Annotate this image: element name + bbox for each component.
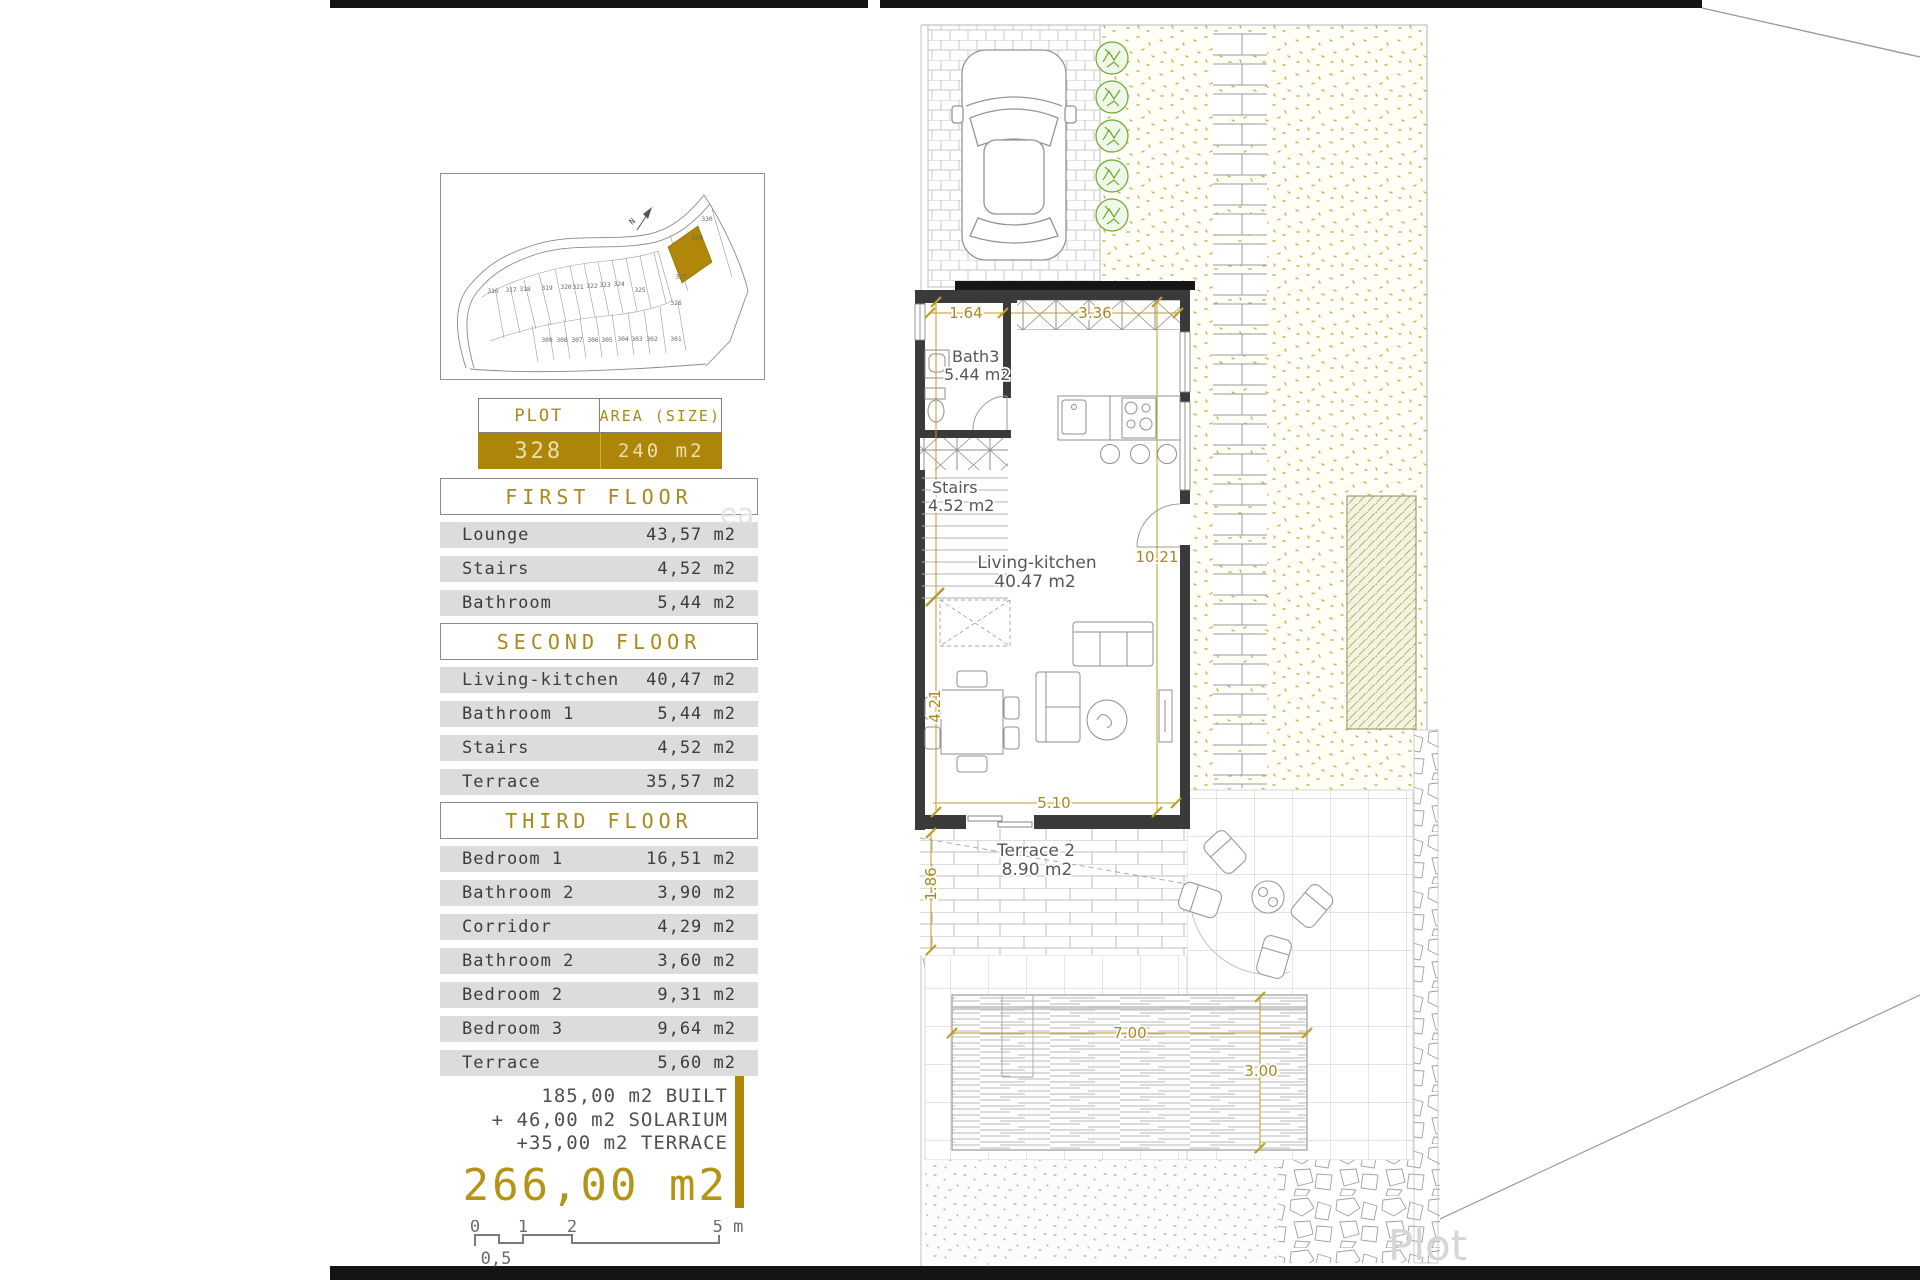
room-label: Stairs <box>462 559 529 579</box>
bath-area-label: 5.44 m2 <box>944 365 1010 384</box>
room-label: Terrace <box>462 772 541 792</box>
room-label: Living-kitchen <box>462 670 619 690</box>
room-label: Corridor <box>462 917 552 937</box>
stone-path <box>1414 730 1438 1263</box>
second-floor-section: SECOND FLOOR Living-kitchen 40,47 m2 Bat… <box>440 623 758 803</box>
room-area: 9,31 m2 <box>657 985 736 1005</box>
living-furniture <box>1036 622 1172 742</box>
plot-number: 329 <box>691 235 703 242</box>
plot-number-cell: 328 <box>478 433 600 469</box>
plot-table-values: 328 240 m2 <box>478 433 722 469</box>
room-label: Bathroom 2 <box>462 951 574 971</box>
plot-number: 322 <box>586 283 598 290</box>
area-row: Terrace 5,60 m2 <box>440 1050 758 1076</box>
site-plan: 1.64 3.36 10.21 4.21 5.10 1.86 7.00 3.00… <box>900 0 1920 1280</box>
plot-number: 309 <box>541 337 553 344</box>
area-row: Bedroom 1 16,51 m2 <box>440 846 758 872</box>
area-row: Bathroom 1 5,44 m2 <box>440 701 758 727</box>
plot-location-diagram: N 316 317 318 319 320 321 322 323 324 32… <box>440 173 765 380</box>
plot-number: 302 <box>646 336 658 343</box>
plot-number: 306 <box>587 337 599 344</box>
stairs-label: Stairs <box>932 478 978 497</box>
room-area: 40,47 m2 <box>646 670 736 690</box>
scale-tick-label: 1 <box>518 1220 528 1237</box>
room-label: Lounge <box>462 525 529 545</box>
plot-number: 303 <box>631 336 643 343</box>
plot-number: 307 <box>571 337 583 344</box>
dim-pool-width: 7.00 <box>1113 1024 1146 1042</box>
area-row: Bathroom 5,44 m2 <box>440 590 758 616</box>
room-area: 4,29 m2 <box>657 917 736 937</box>
kitchen-island <box>1058 396 1180 464</box>
plot-table-header: PLOT AREA (SIZE) <box>478 398 722 433</box>
room-area: 4,52 m2 <box>657 738 736 758</box>
third-floor-section: THIRD FLOOR Bedroom 1 16,51 m2 Bathroom … <box>440 802 758 1084</box>
plot-number: 305 <box>601 337 613 344</box>
under-stairs-closet <box>940 600 1010 646</box>
wardrobe <box>920 438 1008 470</box>
room-label: Stairs <box>462 738 529 758</box>
room-label: Bathroom 2 <box>462 883 574 903</box>
floor-title: FIRST FLOOR <box>440 478 758 515</box>
area-row: Corridor 4,29 m2 <box>440 914 758 940</box>
room-area: 4,52 m2 <box>657 559 736 579</box>
floor-title: THIRD FLOOR <box>440 802 758 839</box>
area-row: Bedroom 3 9,64 m2 <box>440 1016 758 1042</box>
area-row: Bathroom 2 3,60 m2 <box>440 948 758 974</box>
gravel-strip <box>925 1160 1278 1263</box>
sliding-door <box>966 815 1034 829</box>
room-area: 16,51 m2 <box>646 849 736 869</box>
room-label: Bedroom 3 <box>462 1019 563 1039</box>
plot-number: 320 <box>560 284 572 291</box>
terrace2-label: Terrace 2 <box>996 841 1075 861</box>
plot-header-cell: PLOT <box>478 398 600 433</box>
room-label: Bedroom 2 <box>462 985 563 1005</box>
grand-total: 266,00 m2 <box>430 1160 728 1211</box>
room-label: Bathroom <box>462 593 552 613</box>
total-line: +35,00 m2 TERRACE <box>430 1132 728 1156</box>
dim-interior-left: 4.21 <box>926 689 944 722</box>
room-area: 3,90 m2 <box>657 883 736 903</box>
room-area: 3,60 m2 <box>657 951 736 971</box>
bath-label: Bath3 <box>952 347 999 366</box>
plot-number: 327 <box>675 274 687 281</box>
dim-entry-left: 1.64 <box>949 304 982 322</box>
room-area: 9,64 m2 <box>657 1019 736 1039</box>
totals-accent-bar <box>735 1076 744 1208</box>
dim-entry-right: 3.36 <box>1078 304 1111 322</box>
scale-bar: 0 1 2 5 m 0,5 <box>460 1220 760 1275</box>
total-line: + 46,00 m2 SOLARIUM <box>430 1109 728 1133</box>
area-row: Bathroom 2 3,90 m2 <box>440 880 758 906</box>
room-area: 5,60 m2 <box>657 1053 736 1073</box>
stool <box>1101 445 1120 464</box>
plot-number: 330 <box>701 216 713 223</box>
dim-pool-depth: 3.00 <box>1244 1062 1277 1080</box>
house-top-band <box>955 281 1195 290</box>
scale-tick-label: 0 <box>470 1220 480 1237</box>
area-row: Living-kitchen 40,47 m2 <box>440 667 758 693</box>
stool <box>1131 445 1150 464</box>
room-area: 35,57 m2 <box>646 772 736 792</box>
garden-steps <box>1213 32 1267 788</box>
room-label: Bathroom 1 <box>462 704 574 724</box>
plot-number: 316 <box>487 288 499 295</box>
car <box>952 50 1076 260</box>
plot-number: 319 <box>541 285 553 292</box>
room-label: Terrace <box>462 1053 541 1073</box>
plot-number: 301 <box>670 336 682 343</box>
living-area-label: 40.47 m2 <box>994 572 1075 592</box>
plot-number: 308 <box>556 337 568 344</box>
area-row: Lounge 43,57 m2 <box>440 522 758 548</box>
stool <box>1158 445 1177 464</box>
living-label: Living-kitchen <box>977 553 1096 573</box>
plot-number: 321 <box>572 284 584 291</box>
area-row: Stairs 4,52 m2 <box>440 735 758 761</box>
hatched-zone <box>1347 496 1416 729</box>
room-label: Bedroom 1 <box>462 849 563 869</box>
plot-area-table: PLOT AREA (SIZE) 328 240 m2 <box>478 398 722 469</box>
stairs-area-label: 4.52 m2 <box>928 496 994 515</box>
scale-bar-line <box>475 1235 719 1246</box>
page-top-rule-left <box>330 0 868 8</box>
terrace2-area-label: 8.90 m2 <box>1002 860 1073 880</box>
floor-title: SECOND FLOOR <box>440 623 758 660</box>
plot-number: 324 <box>613 281 625 288</box>
diagram-border <box>441 174 765 380</box>
plot-number: 304 <box>617 336 629 343</box>
plot-area-cell: 240 m2 <box>600 433 723 469</box>
area-row: Stairs 4,52 m2 <box>440 556 758 582</box>
room-area: 5,44 m2 <box>657 704 736 724</box>
plot-number: 317 <box>505 287 517 294</box>
plot-number: 323 <box>599 282 611 289</box>
totals-block: 185,00 m2 BUILT + 46,00 m2 SOLARIUM +35,… <box>430 1085 728 1211</box>
dim-interior-height: 10.21 <box>1136 548 1179 566</box>
scale-half-label: 0,5 <box>481 1249 512 1269</box>
total-line: 185,00 m2 BUILT <box>430 1085 728 1109</box>
floorplan-sheet: { "location_diagram": { "north_label": "… <box>0 0 1920 1280</box>
room-area: 5,44 m2 <box>657 593 736 613</box>
plot-number: 318 <box>519 286 531 293</box>
dim-terrace-depth: 1.86 <box>922 867 940 900</box>
area-row: Bedroom 2 9,31 m2 <box>440 982 758 1008</box>
plot-watermark: Plot <box>1388 1221 1467 1270</box>
scale-end-label: 5 m <box>713 1220 744 1237</box>
watermark-fragment: ea <box>720 497 754 530</box>
scale-tick-label: 2 <box>567 1220 577 1237</box>
first-floor-section: FIRST FLOOR Lounge 43,57 m2 Stairs 4,52 … <box>440 478 758 624</box>
area-row: Terrace 35,57 m2 <box>440 769 758 795</box>
plot-number: 325 <box>634 287 646 294</box>
area-header-cell: AREA (SIZE) <box>600 398 722 433</box>
plot-number: 326 <box>670 300 682 307</box>
bath-fixtures <box>925 350 949 422</box>
dim-living-width: 5.10 <box>1037 794 1070 812</box>
